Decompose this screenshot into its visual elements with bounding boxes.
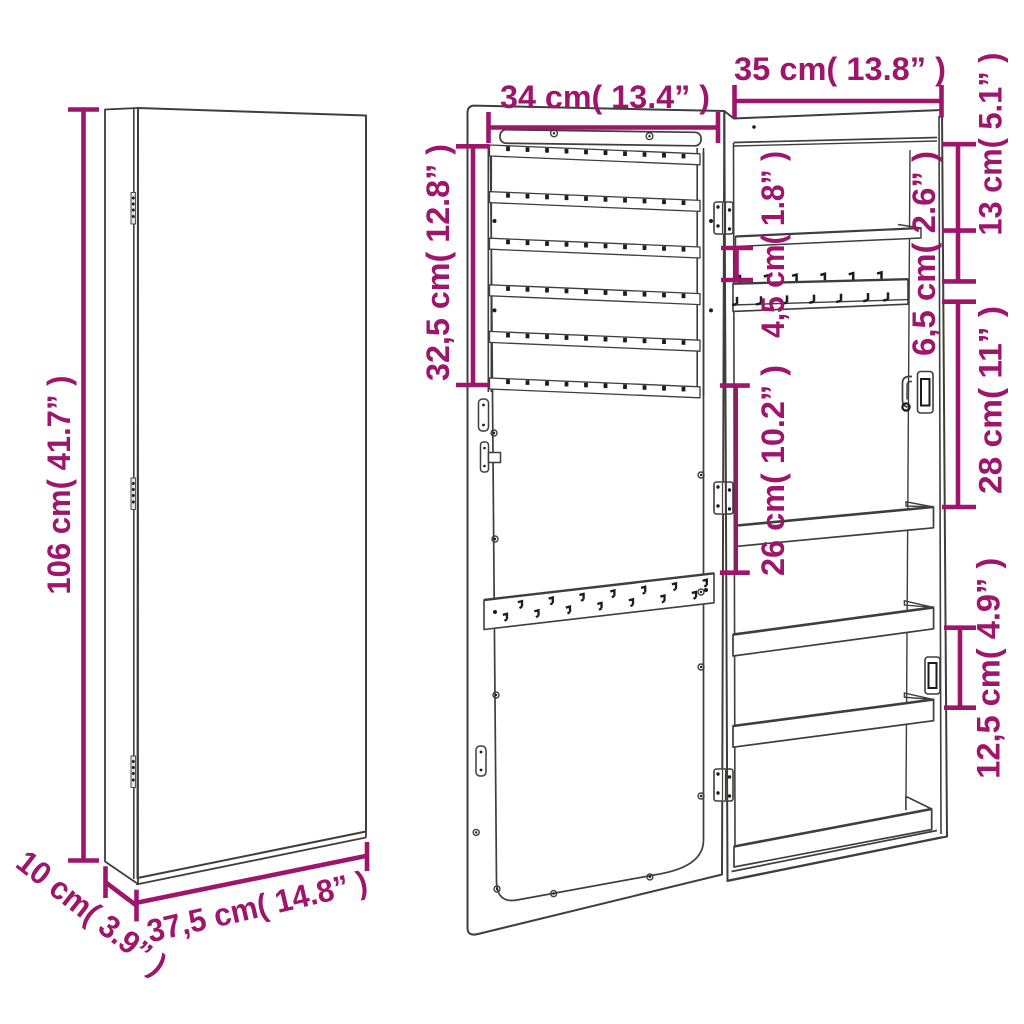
svg-text:4,5 cm( 1.8” ): 4,5 cm( 1.8” ) <box>755 151 791 338</box>
svg-text:34 cm( 13.4” ): 34 cm( 13.4” ) <box>500 79 710 115</box>
svg-text:106 cm( 41.7” ): 106 cm( 41.7” ) <box>41 376 77 595</box>
svg-text:35 cm( 13.8” ): 35 cm( 13.8” ) <box>734 51 946 87</box>
svg-text:6,5 cm( 2.6” ): 6,5 cm( 2.6” ) <box>906 151 942 356</box>
svg-text:28 cm( 11” ): 28 cm( 11” ) <box>973 306 1009 494</box>
svg-text:13 cm( 5.1” ): 13 cm( 5.1” ) <box>973 53 1009 236</box>
svg-text:12,5 cm( 4.9” ): 12,5 cm( 4.9” ) <box>971 558 1007 779</box>
svg-text:32,5 cm( 12.8” ): 32,5 cm( 12.8” ) <box>420 144 456 381</box>
svg-text:26 cm( 10.2” ): 26 cm( 10.2” ) <box>755 365 791 576</box>
